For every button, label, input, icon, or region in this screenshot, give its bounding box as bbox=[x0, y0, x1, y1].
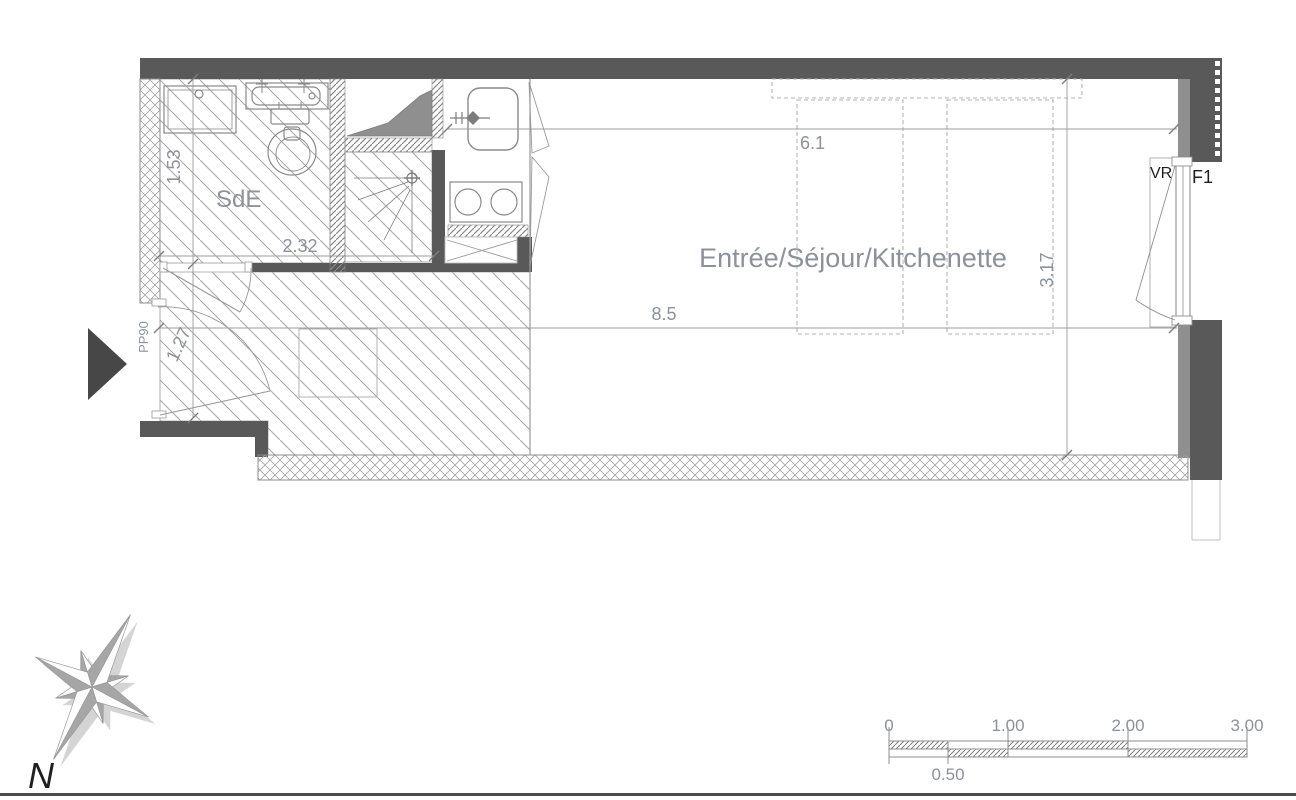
floor-plan-page: N 0 1.00 2.00 3.00 0.50 SdE Entrée/Séjou… bbox=[0, 0, 1296, 800]
closet-sliding-door-symbol bbox=[445, 237, 517, 263]
furniture-dashed-outlines bbox=[772, 79, 1082, 334]
unit-type-label: F1 bbox=[1192, 167, 1213, 187]
bathroom-label: SdE bbox=[216, 186, 261, 213]
right-wall-tail-outline bbox=[1192, 480, 1220, 540]
technical-duct bbox=[347, 90, 432, 136]
window-label: VR bbox=[1150, 165, 1172, 182]
entrance-arrow-icon bbox=[88, 328, 127, 400]
compass-north-label: N bbox=[28, 755, 55, 796]
dimension-room-width: 8.5 bbox=[651, 304, 676, 324]
scale-tick-3: 3.00 bbox=[1230, 716, 1263, 735]
kitchen-faucet-symbol bbox=[450, 111, 490, 125]
window-symbol bbox=[1136, 157, 1192, 327]
dimension-room-depth: 3.17 bbox=[1037, 252, 1057, 287]
floor-plan-canvas: N 0 1.00 2.00 3.00 0.50 SdE Entrée/Séjou… bbox=[0, 0, 1296, 800]
scale-tick-1: 1.00 bbox=[991, 716, 1024, 735]
scale-tick-2: 2.00 bbox=[1111, 716, 1144, 735]
dimension-sde-width: 2.32 bbox=[282, 236, 317, 256]
cooktop-symbol bbox=[450, 182, 522, 222]
dimension-sde-height: 1.53 bbox=[164, 149, 184, 184]
bottom-exterior-wall-lattice bbox=[258, 455, 1188, 480]
entrance-door-label: PP90 bbox=[136, 321, 151, 353]
scale-tick-half: 0.50 bbox=[931, 765, 964, 784]
left-exterior-wall-lattice bbox=[140, 79, 160, 303]
scale-bar: 0 1.00 2.00 3.00 0.50 bbox=[884, 716, 1263, 784]
shower-floor-hatch bbox=[345, 152, 432, 262]
scale-tick-0: 0 bbox=[884, 716, 893, 735]
main-room-label: Entrée/Séjour/Kitchenette bbox=[699, 243, 1007, 273]
page-frame-line bbox=[0, 793, 1296, 796]
dimension-storage-run: 6.1 bbox=[800, 133, 825, 153]
